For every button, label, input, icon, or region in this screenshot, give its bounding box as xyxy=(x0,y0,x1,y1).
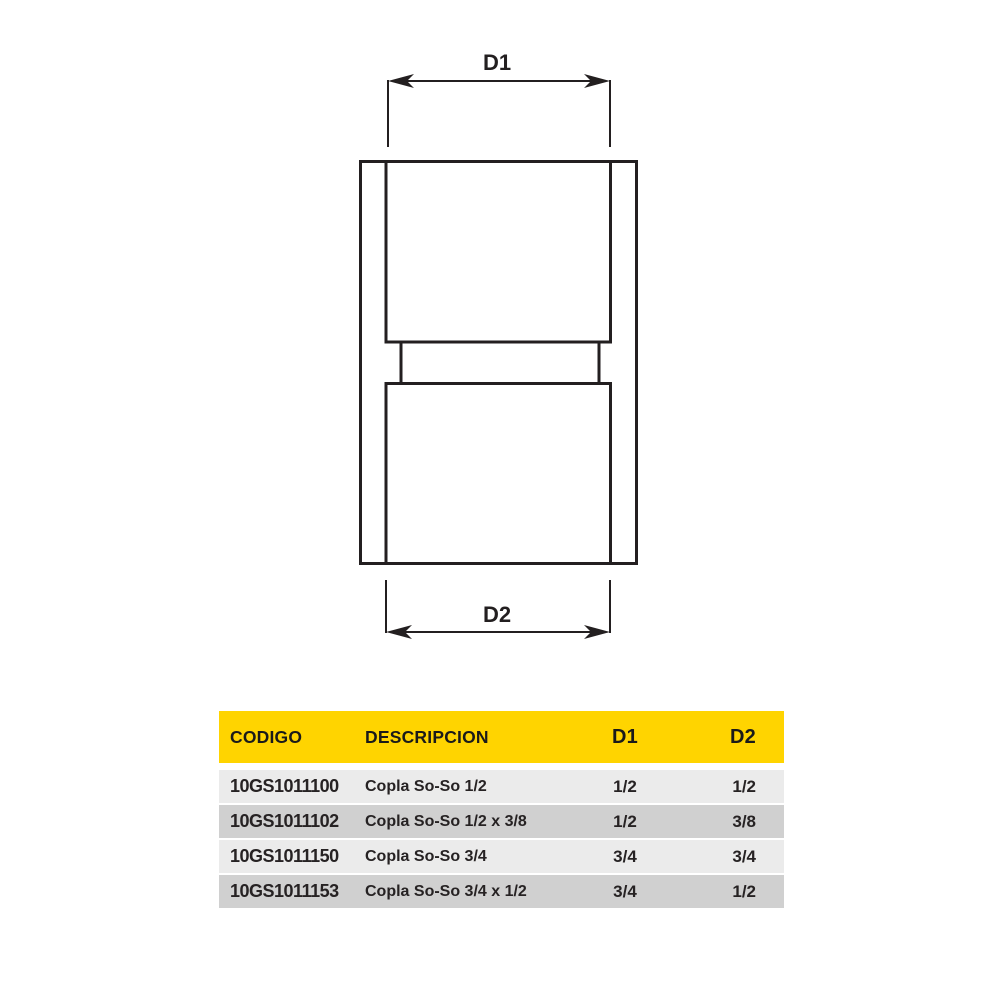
coupling-body xyxy=(361,160,637,565)
catalog-page: D1 D2 CODIGO DESCRIPCION D1 D2 10GS10111… xyxy=(0,0,1000,1000)
header-descripcion: DESCRIPCION xyxy=(365,727,577,748)
product-spec-table: CODIGO DESCRIPCION D1 D2 10GS1011100 Cop… xyxy=(219,711,784,910)
codigo-cell: 10GS1011150 xyxy=(219,846,365,867)
d2-cell: 1/2 xyxy=(673,882,784,902)
dimension-d1: D1 xyxy=(388,50,610,147)
d1-cell: 1/2 xyxy=(577,777,673,797)
dimension-d2: D2 xyxy=(386,580,610,639)
table-row: 10GS1011150 Copla So-So 3/4 3/4 3/4 xyxy=(219,840,784,873)
d1-dimension-label: D1 xyxy=(483,50,511,75)
d1-cell: 3/4 xyxy=(577,847,673,867)
d2-cell: 3/4 xyxy=(673,847,784,867)
descripcion-cell: Copla So-So 3/4 x 1/2 xyxy=(365,883,577,901)
descripcion-cell: Copla So-So 1/2 xyxy=(365,778,577,796)
table-row: 10GS1011100 Copla So-So 1/2 1/2 1/2 xyxy=(219,770,784,803)
codigo-cell: 10GS1011153 xyxy=(219,881,365,902)
header-d1: D1 xyxy=(577,726,673,749)
table-row: 10GS1011102 Copla So-So 1/2 x 3/8 1/2 3/… xyxy=(219,805,784,838)
coupling-technical-drawing: D1 D2 xyxy=(0,0,1000,700)
d1-cell: 3/4 xyxy=(577,882,673,902)
d2-cell: 1/2 xyxy=(673,777,784,797)
d1-cell: 1/2 xyxy=(577,812,673,832)
codigo-cell: 10GS1011100 xyxy=(219,776,365,797)
descripcion-cell: Copla So-So 3/4 xyxy=(365,848,577,866)
d2-dimension-label: D2 xyxy=(483,602,511,627)
table-row: 10GS1011153 Copla So-So 3/4 x 1/2 3/4 1/… xyxy=(219,875,784,908)
codigo-cell: 10GS1011102 xyxy=(219,811,365,832)
d2-cell: 3/8 xyxy=(673,812,784,832)
header-d2: D2 xyxy=(673,726,784,749)
table-header-row: CODIGO DESCRIPCION D1 D2 xyxy=(219,711,784,763)
header-codigo: CODIGO xyxy=(219,727,365,748)
descripcion-cell: Copla So-So 1/2 x 3/8 xyxy=(365,813,577,831)
